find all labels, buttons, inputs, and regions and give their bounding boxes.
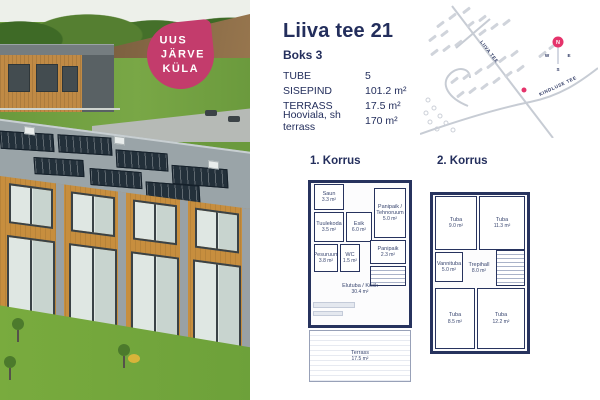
room-vannituba: Vannituba 5.0 m²	[435, 252, 463, 282]
unit-subtitle: Boks 3	[283, 48, 322, 62]
map-roads	[420, 6, 598, 138]
photo-fence	[0, 108, 120, 110]
compass-s: S	[556, 67, 559, 72]
spec-label: TUBE	[283, 70, 365, 82]
spec-row-rooms: TUBE 5	[283, 68, 438, 83]
badge-line: UUS	[159, 33, 212, 47]
room-panipaik: Panipaik 2.3 m²	[370, 240, 406, 264]
room-terrass: Terrass 17.5 m²	[309, 330, 411, 382]
facade-divider	[56, 183, 64, 336]
background-building-window	[8, 64, 30, 92]
kitchen-island	[313, 311, 343, 316]
stairs	[496, 250, 525, 286]
upper-window	[9, 183, 53, 229]
location-map: LIIVA TEE KINDLUSE TEE N W E S	[420, 2, 598, 138]
property-marker-icon	[522, 88, 527, 93]
room-esik: Esik 6.0 m²	[346, 212, 372, 242]
compass-icon: N W E S	[545, 37, 571, 73]
photo-background-building	[0, 44, 114, 112]
page-title: Liiva tee 21	[283, 20, 393, 43]
hvac-unit	[24, 126, 35, 135]
road-label-liiva-tee: LIIVA TEE	[479, 40, 499, 64]
property-photo: UUS JÄRVE KÜLA	[0, 0, 250, 400]
facade-divider	[180, 200, 188, 353]
patio-door-window	[131, 251, 179, 341]
room-wc: WC 1.5 m²	[340, 244, 360, 272]
spec-row-yard-area: Hooviala, sh terrass 170 m²	[283, 113, 438, 128]
facade-divider	[242, 208, 250, 361]
badge-line: JÄRVE	[161, 48, 214, 62]
room-tuba-1: Tuba 9.0 m²	[435, 196, 477, 250]
solar-panel	[33, 157, 84, 177]
compass-w: W	[545, 53, 550, 58]
room-pesuruum: Pesuruum 3.8 m²	[314, 244, 338, 272]
upper-window	[71, 191, 115, 237]
floorplan-2: Tuba 9.0 m² Tuba 11.3 m² Vannituba 5.0 m…	[430, 192, 530, 354]
background-building-endwall	[82, 55, 114, 112]
spec-label: Hooviala, sh terrass	[283, 109, 365, 133]
room-tuulekoda: Tuulekoda 3.5 m²	[314, 212, 344, 242]
background-building-window	[62, 66, 78, 92]
hvac-unit	[208, 160, 219, 169]
spec-table: TUBE 5 SISEPIND 101.2 m² TERRASS 17.5 m²…	[283, 68, 438, 128]
badge-line: KÜLA	[162, 62, 215, 76]
room-tuba-4: Tuba 12.2 m²	[477, 288, 525, 349]
yellow-shrub	[128, 354, 140, 363]
room-elutuba-kook: Elutuba / Köök 30.4 m²	[326, 278, 394, 300]
compass-e: E	[567, 53, 570, 58]
upper-window	[133, 200, 177, 246]
solar-panel	[90, 168, 143, 189]
sapling-tree	[4, 356, 16, 380]
spec-row-interior-area: SISEPIND 101.2 m²	[283, 83, 438, 98]
room-trepihall: Trepihall 8.0 m²	[465, 256, 493, 280]
property-sheet: UUS JÄRVE KÜLA Liiva tee 21 Boks 3 TUBE …	[0, 0, 600, 400]
kitchen-counter	[313, 302, 355, 308]
background-building-window	[36, 64, 58, 92]
room-tuba-3: Tuba 8.5 m²	[435, 288, 475, 349]
compass-n: N	[556, 40, 560, 46]
facade-divider	[118, 192, 126, 345]
hvac-unit	[114, 136, 125, 145]
room-panipaik-tehnoruum: Panipaik / Tehnoruum 5.0 m²	[374, 188, 406, 238]
solar-panel	[116, 149, 169, 171]
sapling-tree	[12, 318, 24, 342]
floorplan-1-title: 1. Korrus	[310, 155, 361, 167]
patio-door-window	[193, 259, 241, 349]
floorplan-2-title: 2. Korrus	[437, 155, 488, 167]
solar-panel	[57, 134, 112, 155]
floorplan-1: Saun 3.3 m² Tuulekoda 3.5 m² Esik 6.0 m²…	[308, 180, 412, 384]
room-tuba-2: Tuba 11.3 m²	[479, 196, 525, 250]
spec-label: SISEPIND	[283, 85, 365, 97]
room-saun: Saun 3.3 m²	[314, 184, 344, 210]
upper-window	[195, 208, 239, 254]
